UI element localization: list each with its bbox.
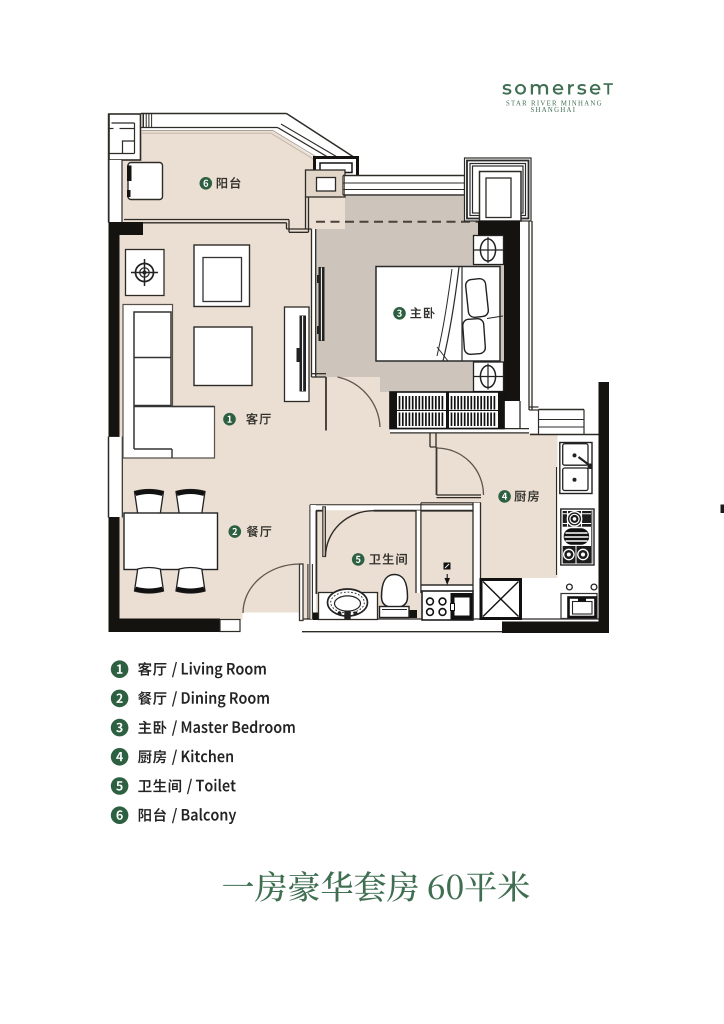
svg-text:SHANGHAI: SHANGHAI: [530, 107, 576, 114]
